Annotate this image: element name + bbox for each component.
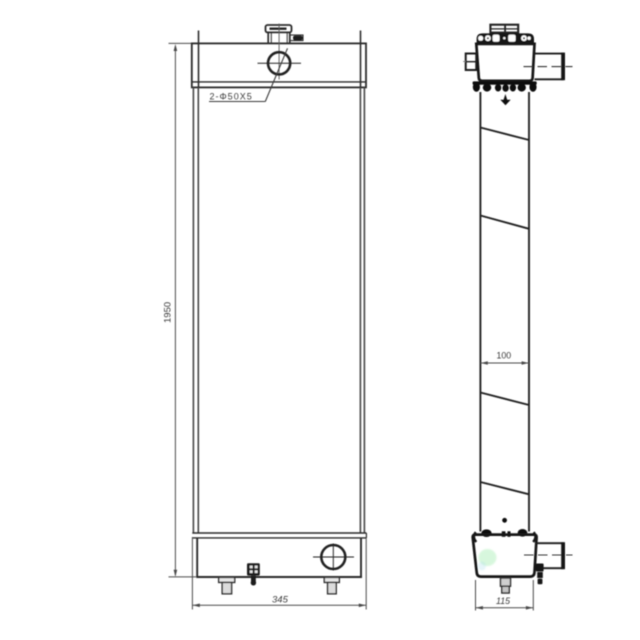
svg-text:100: 100 [497,351,512,361]
svg-text:115: 115 [496,596,510,606]
svg-text:345: 345 [272,595,289,606]
svg-text:2-Φ50X5: 2-Φ50X5 [210,92,253,102]
svg-text:1950: 1950 [163,302,174,323]
